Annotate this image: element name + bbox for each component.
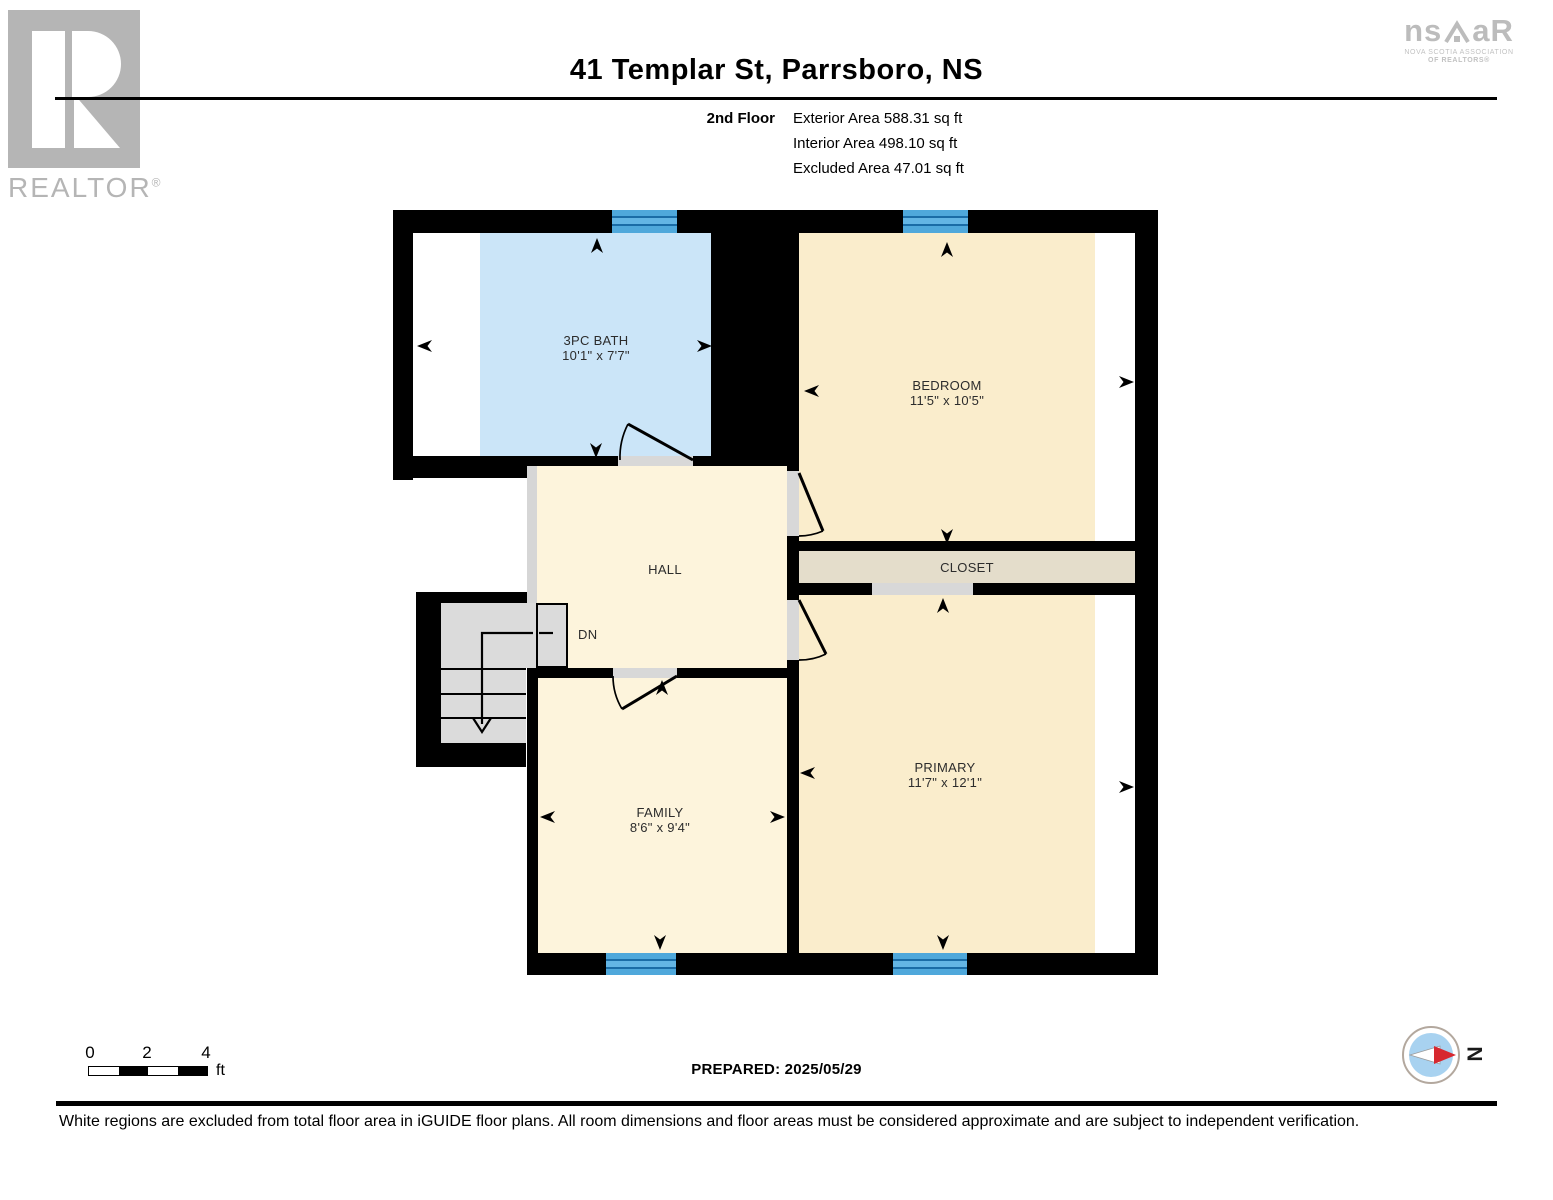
family-door-swing: [613, 676, 677, 709]
exterior-area-text: Exterior Area 588.31 sq ft: [793, 110, 1093, 127]
page-title: 41 Templar St, Parrsboro, NS: [0, 54, 1553, 87]
realtor-wordmark: REALTOR®: [8, 172, 163, 204]
family-arrow-left: [540, 811, 555, 823]
nsar-caption-line1: NOVA SCOTIA ASSOCIATION: [1379, 49, 1539, 57]
family-dims: 8'6" x 9'4": [560, 820, 760, 835]
scale-tick-2: 2: [137, 1043, 157, 1063]
bedroom-arrow-up: [941, 242, 953, 257]
excluded-area-text: Excluded Area 47.01 sq ft: [793, 160, 1093, 177]
bath-arrow-right: [697, 340, 712, 352]
bedroom-door-swing: [799, 473, 823, 536]
nsar-ns-text: ns: [1404, 16, 1442, 46]
bedroom-arrow-down: [941, 529, 953, 544]
primary-arrow-down: [937, 935, 949, 950]
primary-name: PRIMARY: [845, 760, 1045, 775]
compass-icon: [1400, 1024, 1464, 1088]
realtor-r-icon: [8, 10, 140, 168]
scale-tick-4: 4: [196, 1043, 216, 1063]
interior-area-text: Interior Area 498.10 sq ft: [793, 135, 1093, 152]
footer-divider: [56, 1101, 1497, 1106]
hall-name: HALL: [565, 562, 765, 577]
bedroom-arrow-right: [1119, 376, 1134, 388]
nsar-caption-line2: OF REALTORS®: [1379, 57, 1539, 65]
bedroom-dims: 11'5" x 10'5": [847, 393, 1047, 408]
family-arrow-right: [770, 811, 785, 823]
closet-name: CLOSET: [799, 560, 1135, 575]
page: REALTOR® 41 Templar St, Parrsboro, NS 2n…: [0, 0, 1553, 1200]
room-label-closet: CLOSET: [799, 560, 1135, 575]
floor-label: 2nd Floor: [575, 110, 775, 127]
realtor-logo: REALTOR®: [8, 10, 208, 173]
stair-dn-label: DN: [578, 627, 618, 642]
room-label-hall: HALL: [565, 562, 765, 577]
bedroom-name: BEDROOM: [847, 378, 1047, 393]
bath-arrow-left: [417, 340, 432, 352]
nsar-wordmark: ns aR: [1379, 16, 1539, 46]
room-label-bath: 3PC BATH 10'1" x 7'7": [496, 333, 696, 363]
scale-tick-0: 0: [80, 1043, 100, 1063]
title-divider: [55, 97, 1497, 100]
plan-annotations: [393, 210, 1158, 975]
primary-door-swing: [799, 600, 826, 660]
closet-arrow-up: [937, 598, 949, 613]
registered-mark: ®: [152, 176, 163, 190]
nsar-ar-text: aR: [1472, 16, 1514, 46]
disclaimer-text: White regions are excluded from total fl…: [59, 1113, 1519, 1131]
room-label-bedroom: BEDROOM 11'5" x 10'5": [847, 378, 1047, 408]
bath-arrow-up: [591, 238, 603, 253]
bath-name: 3PC BATH: [496, 333, 696, 348]
room-label-primary: PRIMARY 11'7" x 12'1": [845, 760, 1045, 790]
floor-plan: 3PC BATH 10'1" x 7'7" BEDROOM 11'5" x 10…: [393, 210, 1158, 975]
family-arrow-down: [654, 935, 666, 950]
nsar-logo: ns aR NOVA SCOTIA ASSOCIATION OF REALTOR…: [1379, 16, 1539, 65]
prepared-date: PREPARED: 2025/05/29: [0, 1061, 1553, 1078]
compass: N: [1400, 1024, 1500, 1094]
stair-down-arrow: [473, 633, 553, 732]
bath-arrow-down: [590, 443, 602, 458]
bath-dims: 10'1" x 7'7": [496, 348, 696, 363]
bedroom-arrow-left: [804, 385, 819, 397]
compass-north-label: N: [1462, 1046, 1486, 1061]
primary-arrow-left: [800, 767, 815, 779]
primary-arrow-right: [1119, 781, 1134, 793]
dn-text: DN: [578, 627, 618, 642]
primary-dims: 11'7" x 12'1": [845, 775, 1045, 790]
house-icon: [1443, 16, 1471, 46]
bath-door-swing: [620, 424, 693, 460]
family-name: FAMILY: [560, 805, 760, 820]
room-label-family: FAMILY 8'6" x 9'4": [560, 805, 760, 835]
